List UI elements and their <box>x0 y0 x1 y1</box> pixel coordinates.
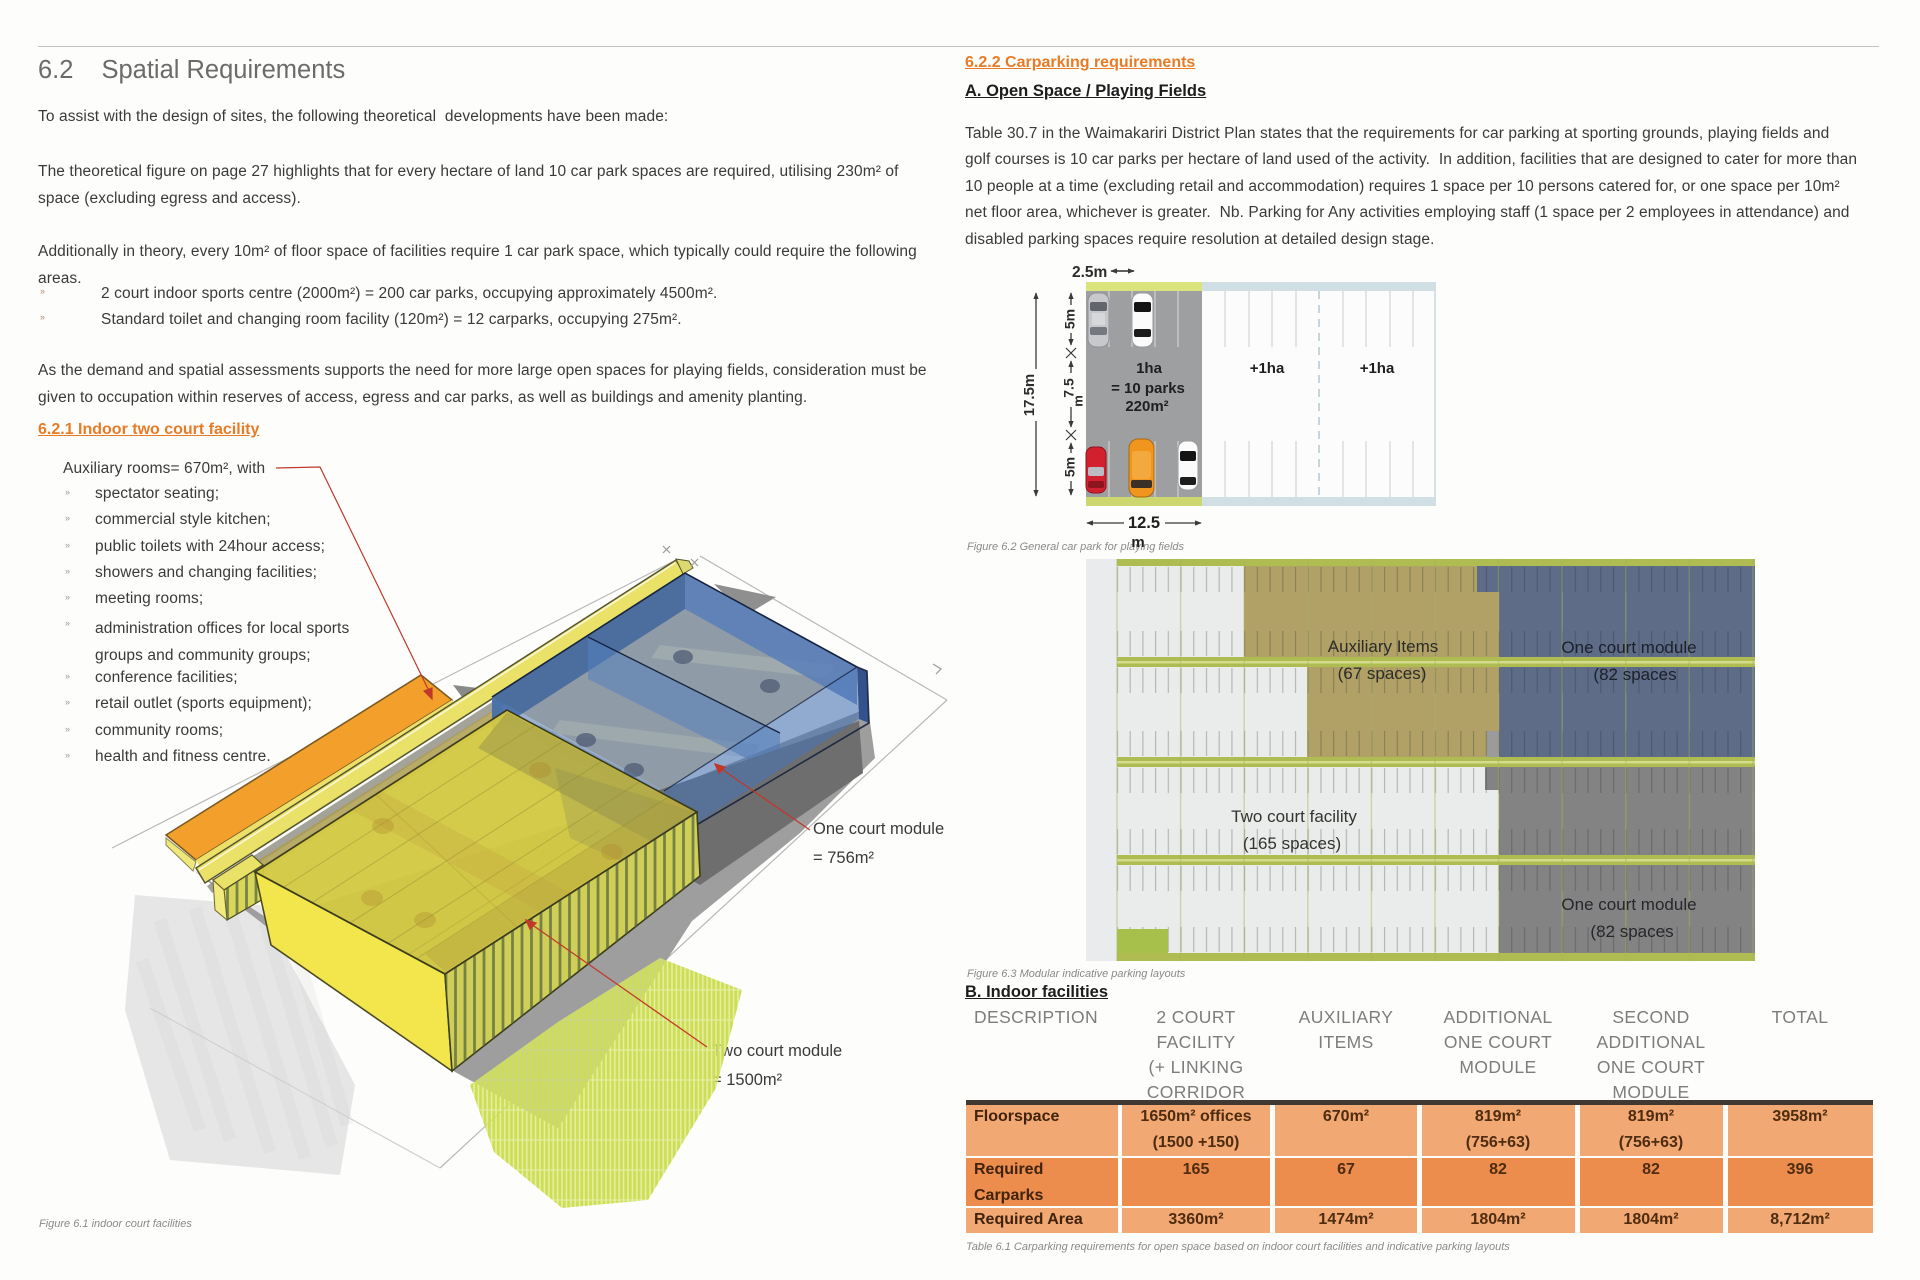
svg-text:Two court facility: Two court facility <box>1231 807 1357 826</box>
svg-text:1ha: 1ha <box>1136 360 1163 377</box>
svg-text:(82 spaces: (82 spaces <box>1590 922 1673 941</box>
svg-text:+1ha: +1ha <box>1250 360 1285 377</box>
svg-text:5m: 5m <box>1062 309 1078 329</box>
svg-text:(67 spaces): (67 spaces) <box>1338 664 1427 683</box>
svg-text:17.5m: 17.5m <box>1021 374 1038 417</box>
svg-text:7.5: 7.5 <box>1061 378 1077 398</box>
svg-text:2.5m: 2.5m <box>1072 264 1107 281</box>
svg-text:One court module: One court module <box>1561 895 1696 914</box>
svg-text:+1ha: +1ha <box>1360 360 1395 377</box>
svg-text:5m: 5m <box>1062 457 1078 477</box>
svg-text:Auxiliary Items: Auxiliary Items <box>1328 637 1439 656</box>
svg-text:(165 spaces): (165 spaces) <box>1243 834 1341 853</box>
svg-text:12.5: 12.5 <box>1128 514 1160 532</box>
svg-text:One court module: One court module <box>1561 638 1696 657</box>
svg-text:(82 spaces: (82 spaces <box>1593 665 1676 684</box>
svg-text:m: m <box>1131 534 1144 551</box>
svg-text:m: m <box>1070 395 1085 407</box>
svg-text:= 10 parks: = 10 parks <box>1111 380 1185 397</box>
svg-text:220m²: 220m² <box>1125 398 1168 415</box>
